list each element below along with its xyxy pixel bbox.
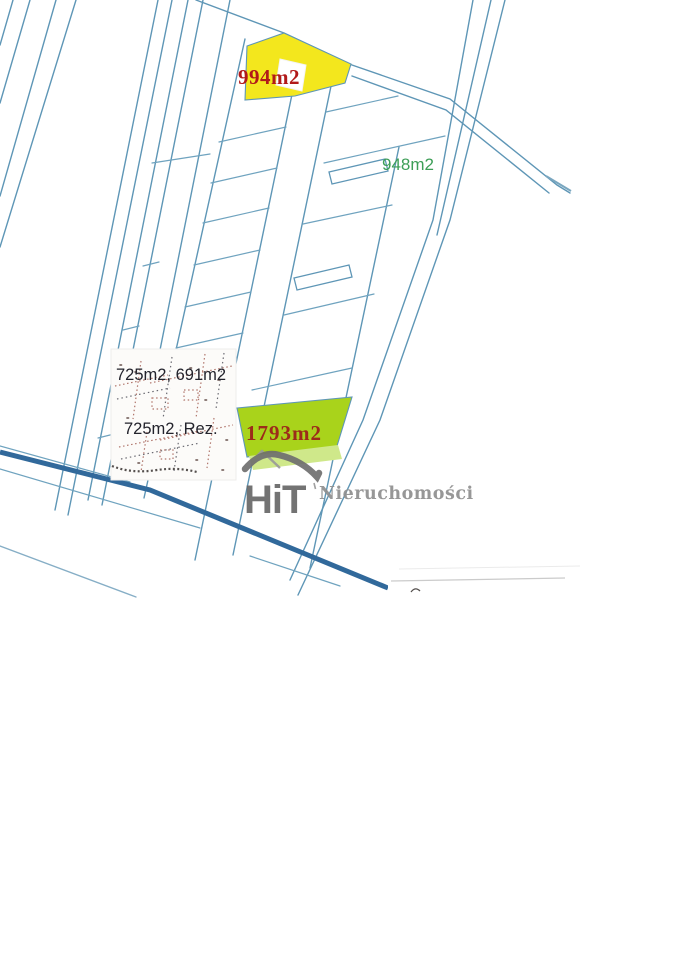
watermark-company-text: Nieruchomości	[319, 484, 474, 504]
apostrophe-mark	[314, 483, 316, 489]
inset-area-label-bottom: 725m2, Rez.	[124, 420, 218, 438]
right-parcel-area-label: 948m2	[382, 155, 434, 174]
white-patch	[388, 566, 679, 608]
green-parcel-area-label: 1793m2	[246, 421, 322, 445]
road-stub-upper	[329, 159, 388, 184]
top-left-boundary-lines	[0, 0, 76, 247]
inset-area-label-top: 725m2, 691m2	[116, 366, 226, 384]
yellow-parcel-area-label: 994m2	[238, 65, 300, 89]
road-stub-lower	[294, 265, 352, 290]
logo-text: HiT	[244, 478, 306, 522]
cadastral-map-image: 994m2 948m2 725m2, 691m2 725m2, Rez. 179…	[0, 0, 679, 960]
cadastral-map-svg: 994m2 948m2 725m2, 691m2 725m2, Rez. 179…	[0, 0, 679, 960]
